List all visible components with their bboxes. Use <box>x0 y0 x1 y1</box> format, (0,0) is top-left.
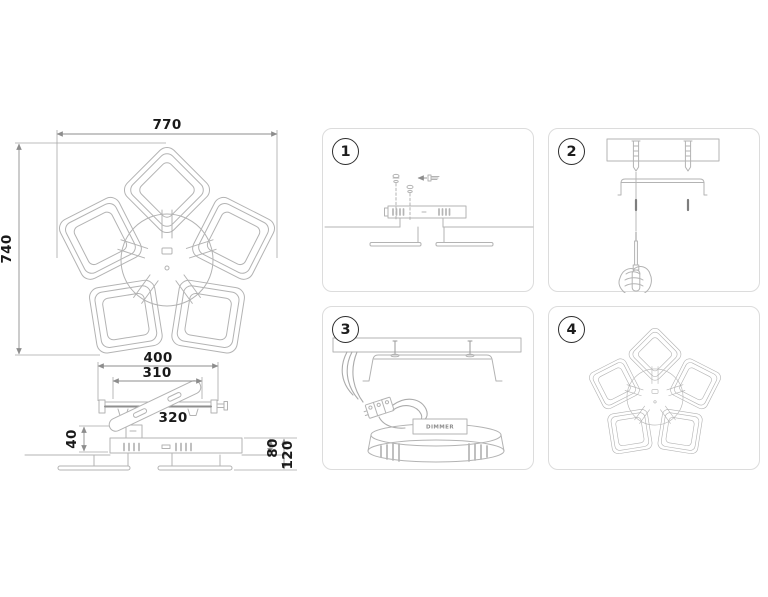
dimensions-drawing: 770 740 <box>0 100 320 500</box>
dim-80-label: 80 <box>265 438 281 457</box>
screwdriver <box>632 232 640 291</box>
step-2-number: 2 <box>566 144 576 160</box>
dim-40-label: 40 <box>64 429 80 448</box>
mounting-bracket <box>363 355 502 381</box>
dim-310-label: 310 <box>142 365 171 381</box>
terminal-block <box>362 397 394 419</box>
mounting-bracket <box>618 179 707 195</box>
side-screw <box>217 402 228 411</box>
ceiling-screw <box>391 341 399 357</box>
step-panel-2: 2 <box>548 128 760 292</box>
ceiling-strip <box>607 139 719 161</box>
wall-anchor <box>684 141 692 171</box>
installation-instruction-sheet: 770 740 <box>0 0 768 597</box>
dim-320-label: 320 <box>158 410 187 426</box>
step-panel-3: 3 <box>322 306 534 470</box>
arms-side-view <box>25 453 292 470</box>
step-1-badge: 1 <box>332 138 359 165</box>
canopy-base <box>385 206 467 218</box>
step-3-number: 3 <box>340 322 350 338</box>
step-3-badge: 3 <box>332 316 359 343</box>
dim-400-label: 400 <box>143 350 172 366</box>
driver-label: DIMMER <box>426 425 454 431</box>
arms-side-view <box>325 218 533 246</box>
canopy-base <box>110 438 242 453</box>
assembled-chandelier <box>579 326 732 471</box>
dim-120-label: 120 <box>280 440 296 469</box>
wires <box>342 352 427 428</box>
dim-740-label: 740 <box>0 234 15 263</box>
step-1-number: 1 <box>340 144 350 160</box>
ceiling-screw <box>466 341 474 357</box>
mounting-screws <box>636 200 688 210</box>
step-2-badge: 2 <box>558 138 585 165</box>
bracket-perspective <box>107 379 203 438</box>
ceiling-strip <box>333 338 521 352</box>
step-4-badge: 4 <box>558 316 585 343</box>
unscrew-arrow-icon <box>418 175 439 181</box>
chandelier-side-view: 400 310 320 40 80 120 <box>25 350 297 470</box>
chandelier-top-view: 770 740 <box>0 117 292 382</box>
step-panel-4: 4 <box>548 306 760 470</box>
driver-box: DIMMER <box>413 419 467 434</box>
step-4-number: 4 <box>566 322 576 338</box>
dim-770-label: 770 <box>152 117 181 133</box>
step-panel-1: 1 <box>322 128 534 292</box>
wall-anchor <box>632 141 640 171</box>
